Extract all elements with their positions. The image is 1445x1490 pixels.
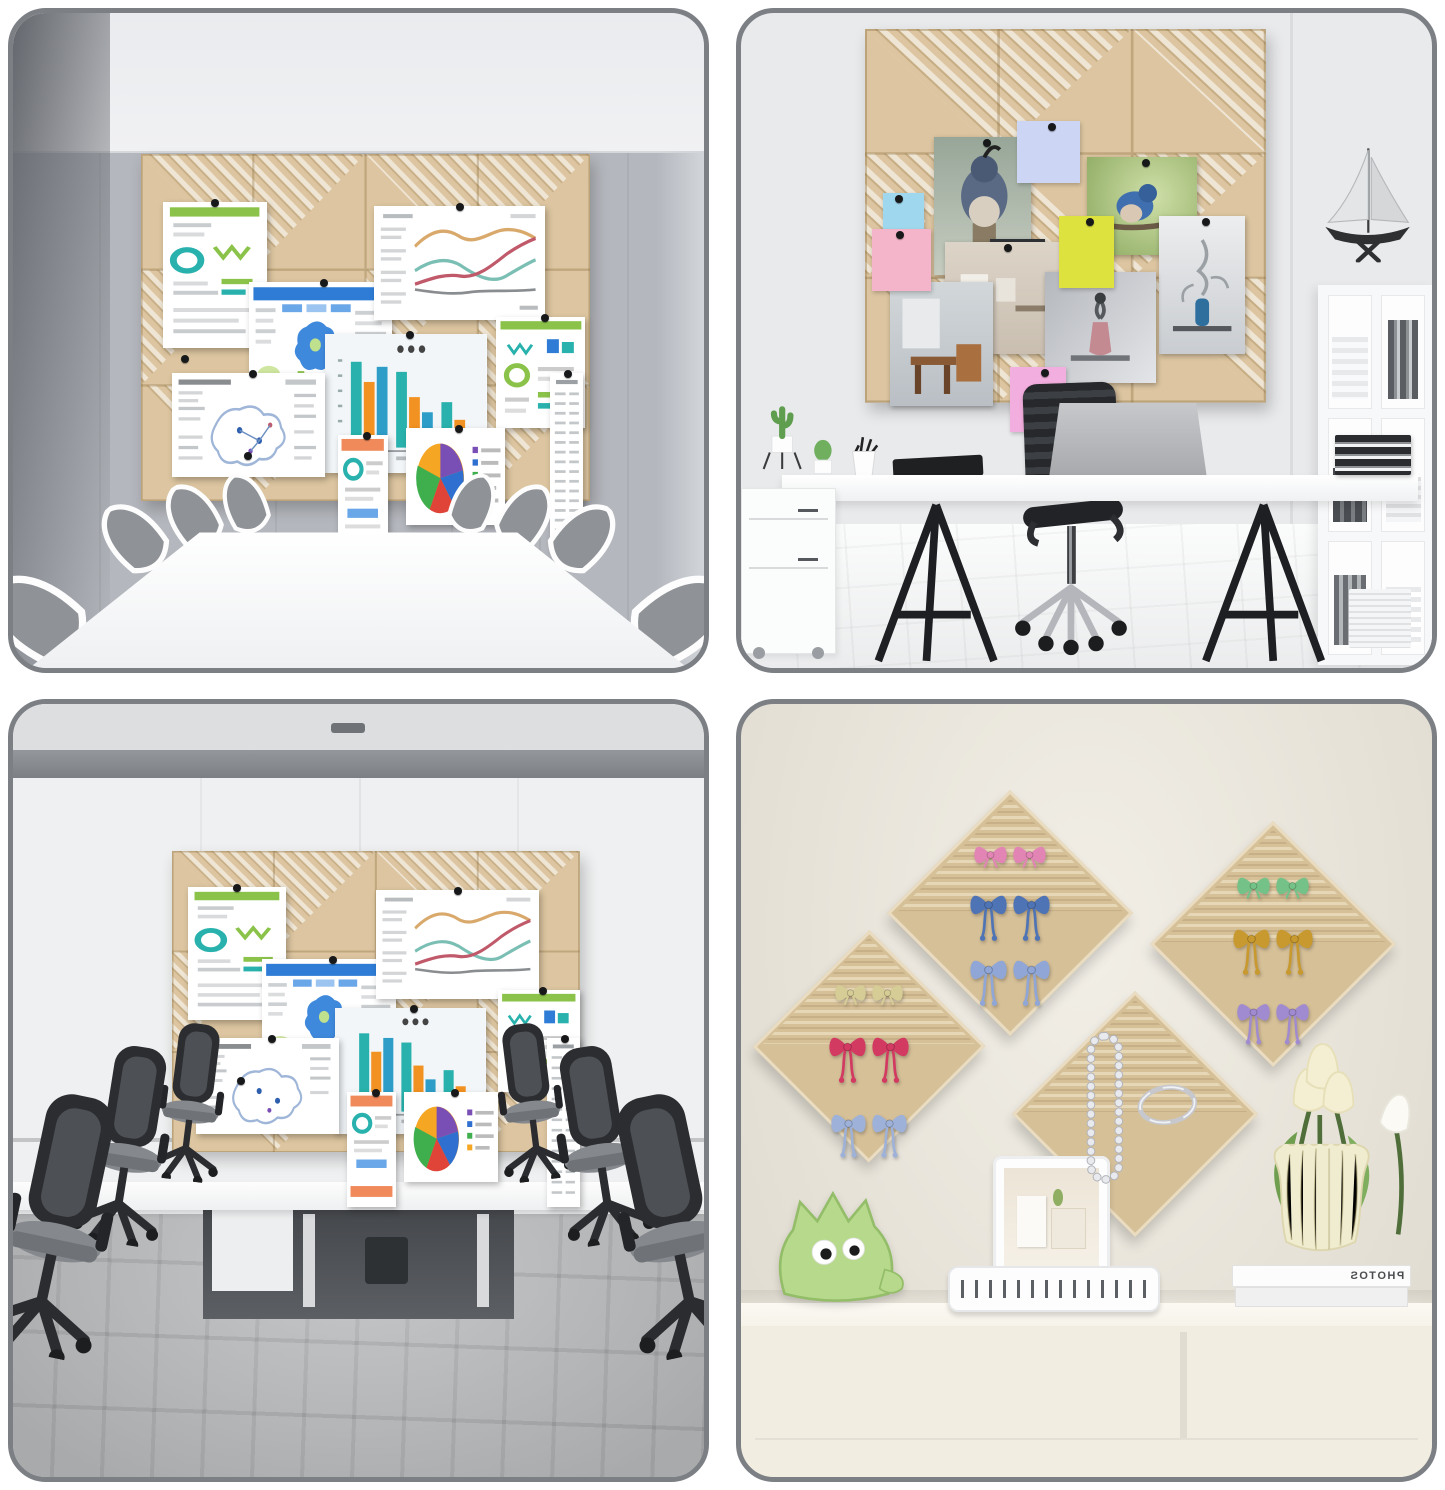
bow-pair-gold <box>1233 927 1314 977</box>
dark-beam <box>13 750 704 778</box>
plush-toy <box>769 1176 907 1311</box>
bow-pair-purple <box>1237 1001 1310 1047</box>
drawer-cart <box>741 488 836 654</box>
vase-sketch-photo <box>1159 216 1245 354</box>
sideboard-front <box>741 1326 1432 1477</box>
shelf-cell <box>1381 295 1425 409</box>
felt-pin-board <box>141 154 590 501</box>
silver-bangle <box>1130 1075 1205 1135</box>
collage-canvas: PHOTOS <box>0 0 1445 1490</box>
photo-conference-room <box>8 8 709 673</box>
sticky-note-yellow <box>1059 216 1114 288</box>
clip-tray <box>948 1266 1159 1312</box>
bow-pair-lightblue <box>970 958 1051 1008</box>
bow-pair-green <box>1237 874 1310 900</box>
bow-pair-blue <box>970 893 1051 943</box>
pinned-line-chart <box>376 890 539 999</box>
ceiling-vent <box>331 723 366 732</box>
diamond-board-left <box>751 928 986 1164</box>
clip-row <box>961 1280 1148 1298</box>
book-stack <box>1335 435 1411 474</box>
small-cactus <box>807 435 839 478</box>
shelf-cell <box>1328 295 1372 409</box>
photo-meeting-room <box>8 699 709 1482</box>
office-chair-base <box>990 501 1156 665</box>
pearl-necklace <box>1075 1030 1135 1204</box>
sticky-note-lavender <box>1017 121 1079 183</box>
photo-home-office <box>736 8 1437 673</box>
bow-pair-pink <box>974 843 1047 869</box>
book-stack: PHOTOS <box>1232 1265 1412 1307</box>
under-table-opening <box>203 1203 514 1319</box>
pen-cup <box>848 429 880 478</box>
ceiling <box>13 13 704 153</box>
bow-pair-cream <box>834 982 903 1006</box>
book-spine-label: PHOTOS <box>1349 1270 1404 1282</box>
photo-craft-wall: PHOTOS <box>736 699 1437 1482</box>
pinned-line-chart <box>374 206 545 321</box>
cafe-photo <box>890 282 994 406</box>
pinned-mobile-report <box>347 1092 396 1207</box>
desk-top <box>782 475 1418 501</box>
sticky-note-pink <box>872 229 931 291</box>
cactus-plant <box>758 399 806 471</box>
drawer-divider <box>1180 1332 1187 1438</box>
paper-stack <box>1349 589 1411 648</box>
bow-pair-bluestripe <box>830 1112 907 1160</box>
pinned-map-document <box>172 373 325 477</box>
drawer-seam <box>755 1438 1418 1440</box>
bow-pair-red <box>828 1035 909 1085</box>
model-sailboat <box>1315 118 1419 288</box>
laptop-screen <box>1048 403 1207 482</box>
